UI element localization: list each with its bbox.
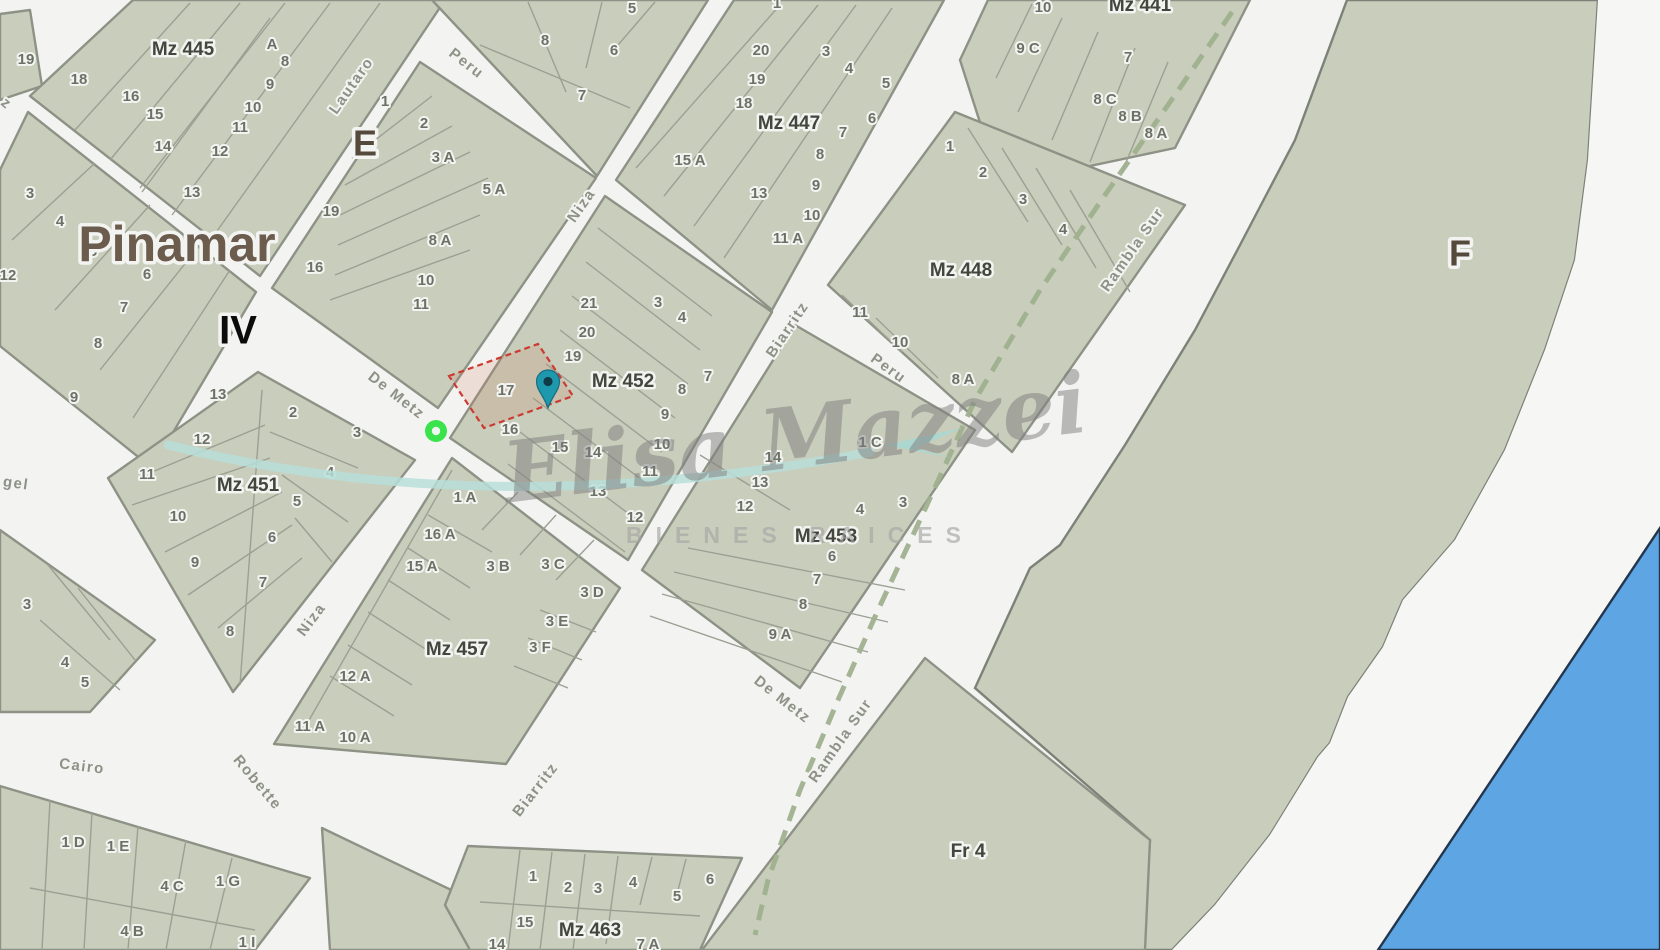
lot-label: 3 bbox=[1019, 191, 1027, 208]
lot-label: 4 bbox=[845, 60, 854, 77]
lot-label: 19 bbox=[18, 51, 35, 68]
lot-label: 5 A bbox=[483, 181, 506, 198]
block-label-mz-463: Mz 463 bbox=[559, 920, 621, 941]
lot-label: 3 bbox=[353, 424, 361, 441]
lot-label: 15 bbox=[147, 106, 164, 123]
lot-label: 4 bbox=[56, 213, 65, 230]
lot-label: 4 bbox=[629, 874, 638, 891]
lot-label: 6 bbox=[610, 42, 618, 59]
lot-label: 11 bbox=[232, 119, 248, 136]
lot-label: 11 bbox=[139, 466, 155, 483]
lot-label: 9 bbox=[812, 177, 820, 194]
pinamar-cadastral-map: LautaroPeruNizaDe MetzBiarritzPeruRambla… bbox=[0, 0, 1660, 950]
lot-label: 8 bbox=[678, 381, 686, 398]
zone-label-iv: IV bbox=[219, 309, 257, 353]
lot-label: 12 bbox=[194, 431, 211, 448]
lot-label: 9 bbox=[70, 389, 78, 406]
lot-label: 9 A bbox=[769, 626, 792, 643]
lot-label: 7 bbox=[813, 571, 821, 588]
lot-label: 6 bbox=[828, 548, 836, 565]
lot-label: 8 bbox=[226, 623, 234, 640]
lot-label: 7 bbox=[120, 299, 128, 316]
lot-label: 16 A bbox=[424, 526, 455, 543]
lot-label: 8 bbox=[94, 335, 102, 352]
lot-label: 3 bbox=[23, 596, 31, 613]
zone-label-f: F bbox=[1449, 233, 1471, 274]
lot-label: 5 bbox=[628, 0, 636, 17]
watermark-subtitle: BIENES RAICES bbox=[626, 522, 974, 548]
lot-label: 11 A bbox=[295, 718, 325, 735]
lot-label: 20 bbox=[753, 42, 770, 59]
lot-label: 1 bbox=[773, 0, 781, 12]
lot-label: 3 bbox=[654, 294, 662, 311]
lot-label: 9 C bbox=[1016, 40, 1040, 57]
lot-label: 8 bbox=[541, 32, 549, 49]
lot-label: 3 A bbox=[432, 149, 455, 166]
lot-label: 12 bbox=[737, 498, 754, 515]
block-label-mz-457: Mz 457 bbox=[426, 639, 488, 660]
lot-label: 7 bbox=[578, 87, 586, 104]
lot-label: 11 A bbox=[773, 230, 803, 247]
lot-label: 1 E bbox=[107, 838, 130, 855]
lot-label: 8 bbox=[281, 53, 289, 70]
block-label-mz-441: Mz 441 bbox=[1109, 0, 1172, 16]
lot-label: 19 bbox=[749, 71, 766, 88]
lot-label: 3 E bbox=[546, 613, 569, 630]
lot-label: 1 I bbox=[239, 934, 256, 950]
lot-label: 10 bbox=[1035, 0, 1052, 16]
zone-label-pinamar: Pinamar bbox=[78, 216, 275, 272]
lot-label: 11 bbox=[852, 304, 868, 321]
lot-label: 1 G bbox=[216, 873, 240, 890]
lot-label: 20 bbox=[579, 324, 596, 341]
lot-label: 3 bbox=[899, 494, 907, 511]
lot-label: 14 bbox=[155, 138, 172, 155]
lot-label: 4 B bbox=[120, 923, 144, 940]
lot-label: 9 bbox=[266, 76, 274, 93]
lot-label: 5 bbox=[81, 674, 89, 691]
lot-label: 6 bbox=[268, 529, 276, 546]
lot-label: 18 bbox=[71, 71, 88, 88]
lot-label: 5 bbox=[882, 75, 890, 92]
green-dot-inner bbox=[432, 427, 440, 435]
lot-label: 12 bbox=[0, 267, 16, 284]
lot-label: 5 bbox=[673, 888, 681, 905]
block-label-fr-4: Fr 4 bbox=[951, 841, 986, 862]
lot-label: 8 bbox=[799, 596, 807, 613]
lot-label: 6 bbox=[868, 110, 876, 127]
block-label-mz-451: Mz 451 bbox=[217, 475, 280, 496]
lot-label: A bbox=[267, 36, 278, 53]
lot-label: 13 bbox=[751, 185, 768, 202]
lot-label: 10 bbox=[804, 207, 821, 224]
lot-label: 18 bbox=[736, 95, 753, 112]
lot-label: 19 bbox=[565, 348, 582, 365]
lot-label: 15 bbox=[517, 914, 534, 931]
lot-label: 11 bbox=[413, 296, 429, 313]
lot-label: 2 bbox=[289, 404, 297, 421]
lot-label: 3 bbox=[822, 43, 830, 60]
block-label-mz-448: Mz 448 bbox=[930, 260, 992, 281]
lot-label: 7 bbox=[259, 574, 267, 591]
lot-label: 3 C bbox=[541, 556, 565, 573]
lot-label: 10 A bbox=[339, 729, 370, 746]
lot-label: 7 A bbox=[637, 936, 660, 950]
lot-label: 19 bbox=[323, 203, 340, 220]
block-label-mz-447: Mz 447 bbox=[758, 113, 820, 134]
lot-label: 2 bbox=[420, 115, 428, 132]
lot-label: 5 bbox=[293, 493, 301, 510]
lot-label: 13 bbox=[210, 386, 227, 403]
lot-label: 12 bbox=[212, 143, 229, 160]
lot-label: 14 bbox=[489, 936, 506, 950]
lot-label: 10 bbox=[892, 334, 909, 351]
zone-label-e: E bbox=[353, 123, 377, 164]
lot-label: 8 A bbox=[1145, 125, 1168, 142]
lot-label: 3 bbox=[26, 185, 34, 202]
lot-label: 3 F bbox=[529, 639, 551, 656]
lot-label: 8 bbox=[816, 146, 824, 163]
lot-label: 13 bbox=[184, 184, 201, 201]
block-label-mz-445: Mz 445 bbox=[152, 39, 215, 60]
pin-hole bbox=[543, 377, 552, 386]
lot-label: 7 bbox=[704, 368, 712, 385]
lot-label: 7 bbox=[1124, 49, 1132, 66]
lot-label: 1 A bbox=[454, 489, 477, 506]
lot-label: 1 bbox=[946, 138, 954, 155]
lot-label: 8 A bbox=[429, 232, 452, 249]
lot-label: 3 bbox=[594, 880, 602, 897]
lot-label: 15 A bbox=[674, 152, 705, 169]
lot-label: 8 C bbox=[1093, 91, 1117, 108]
lot-label: 1 bbox=[381, 93, 389, 110]
lot-label: 4 bbox=[1059, 221, 1068, 238]
lot-label: 6 bbox=[706, 871, 714, 888]
green-location-marker-icon[interactable] bbox=[425, 420, 447, 442]
map-canvas[interactable]: LautaroPeruNizaDe MetzBiarritzPeruRambla… bbox=[0, 0, 1660, 950]
lot-label: 7 bbox=[839, 124, 847, 141]
lot-label: 9 bbox=[191, 554, 199, 571]
lot-label: 4 bbox=[678, 309, 687, 326]
lot-label: 1 D bbox=[61, 834, 85, 851]
highlighted-lot-label: 17 bbox=[498, 382, 515, 399]
lot-label: 10 bbox=[418, 272, 435, 289]
lot-label: 3 D bbox=[580, 584, 604, 601]
lot-label: 4 bbox=[856, 501, 865, 518]
lot-label: 2 bbox=[564, 879, 572, 896]
lot-label: 15 A bbox=[406, 558, 437, 575]
lot-label: 12 A bbox=[339, 668, 370, 685]
lot-label: 21 bbox=[581, 295, 598, 312]
lot-label: 8 B bbox=[1118, 108, 1142, 125]
lot-label: 1 bbox=[529, 868, 537, 885]
lot-label: 4 bbox=[61, 654, 70, 671]
lot-label: 3 B bbox=[486, 558, 510, 575]
block-label-mz-452: Mz 452 bbox=[592, 371, 654, 392]
lot-label: 16 bbox=[307, 259, 324, 276]
street-label-gel: gel bbox=[2, 473, 30, 493]
lot-label: 10 bbox=[170, 508, 187, 525]
lot-label: 10 bbox=[245, 99, 262, 116]
lot-label: 4 C bbox=[160, 878, 184, 895]
lot-label: 2 bbox=[979, 164, 987, 181]
lot-label: 16 bbox=[123, 88, 140, 105]
